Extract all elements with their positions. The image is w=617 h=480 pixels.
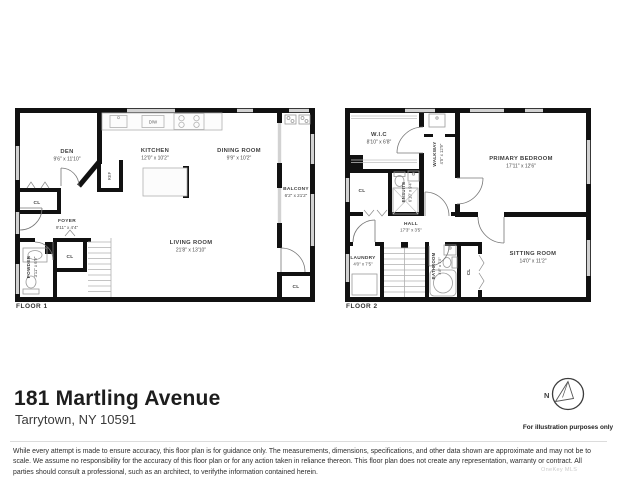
footer-divider: [10, 441, 607, 442]
compass-caption: For illustration purposes only: [500, 424, 617, 431]
room-dims-den: 9'6" x 11'10": [53, 157, 80, 163]
washer-icon: [352, 274, 377, 295]
floorplan-page: DEN 9'6" x 11'10" KITCHEN 12'0" x 10'2" …: [0, 0, 617, 480]
room-label-dining: DINING ROOM: [217, 148, 261, 154]
vanity-icon: [429, 114, 445, 127]
room-label-powder: POWDER: [26, 255, 31, 278]
room-label-balcony: BALCONY: [283, 186, 309, 192]
den-door-icon: [61, 168, 79, 186]
closet-label: CL: [293, 284, 300, 290]
room-dims-primary: 17'11" x 12'6": [506, 164, 536, 170]
disclaimer-text: While every attempt is made to ensure ac…: [13, 447, 601, 478]
room-dims-powder: 3'11" x 6'9": [33, 256, 38, 277]
room-label-foyer: FOYER: [58, 218, 76, 224]
room-dims-ensuite: 6'10" x 9'4": [408, 181, 413, 202]
room-label-living: LIVING ROOM: [170, 240, 213, 246]
walkway-door-icon: [425, 192, 449, 216]
bathtub-basin-icon: [434, 273, 453, 293]
room-label-primary: PRIMARY BEDROOM: [489, 156, 553, 162]
room-label-wic: W.I.C: [371, 132, 387, 138]
floor1-tag: FLOOR 1: [16, 303, 48, 310]
room-label-den: DEN: [60, 149, 73, 155]
address-line2: Tarrytown, NY 10591: [15, 412, 136, 427]
room-dims-bathroom: 4'8" x 7'5": [437, 257, 442, 275]
ref-label: REF: [107, 171, 112, 180]
room-dims-laundry: 4'0" x 7'5": [353, 262, 373, 267]
address-line1: 181 Martling Avenue: [14, 387, 220, 411]
floor1-walls: [15, 108, 315, 302]
room-label-kitchen: KITCHEN: [141, 148, 169, 154]
floor2-floorplan: W.I.C 8'10" x 6'8" WALKWAY 4'5" x 12'9" …: [345, 108, 591, 302]
room-label-sitting: SITTING ROOM: [510, 251, 557, 257]
room-label-hall: HALL: [404, 221, 418, 227]
room-dims-sitting: 14'0" x 11'2": [519, 259, 546, 265]
stairs-icon: [88, 238, 111, 297]
closet-label: CL: [34, 200, 41, 206]
den-diagonal-wall: [79, 162, 99, 186]
room-dims-hall: 17'3" x 3'5": [400, 228, 422, 233]
room-dims-walkway: 4'5" x 12'9": [439, 143, 444, 164]
floor1-floorplan: DEN 9'6" x 11'10" KITCHEN 12'0" x 10'2" …: [15, 108, 315, 302]
closet-label: CL: [466, 269, 471, 276]
kitchen-island-icon: [143, 168, 187, 196]
balcony-door-icon: [281, 248, 305, 272]
stairs-icon: [384, 248, 425, 297]
room-label-bathroom: BATHROOM: [431, 252, 436, 279]
stove-icon: [174, 114, 204, 130]
floor2-tag: FLOOR 2: [346, 303, 378, 310]
bedroom-door-icon: [457, 178, 483, 204]
closet-label: CL: [67, 254, 74, 260]
compass-north-letter: N: [544, 391, 549, 400]
room-label-walkway: WALKWAY: [432, 141, 437, 166]
balcony-furniture-icon: [285, 115, 310, 124]
mls-watermark: OneKey MLS: [541, 467, 577, 473]
room-dims-living: 21'8" x 13'10": [176, 248, 206, 254]
room-dims-kitchen: 12'0" x 10'2": [141, 156, 169, 162]
room-dims-balcony: 6'2" x 21'2": [285, 193, 308, 198]
toilet-tank-icon: [23, 289, 39, 294]
room-label-ensuite: ENSUITE: [401, 182, 406, 203]
wic-door-icon: [397, 127, 423, 153]
toilet-tank-icon: [452, 257, 457, 268]
room-dims-foyer: 9'11" x 4'4": [56, 225, 79, 230]
floor1-labels: DEN 9'6" x 11'10" KITCHEN 12'0" x 10'2" …: [26, 120, 309, 291]
room-label-laundry: LAUNDRY: [350, 255, 376, 261]
room-dims-wic: 8'10" x 6'8": [367, 140, 392, 146]
dishwasher-label: D/W: [149, 120, 157, 125]
north-compass-icon: N: [535, 372, 599, 420]
room-dims-dining: 9'9" x 10'2": [227, 156, 252, 162]
laundry-door-icon: [353, 220, 375, 242]
sitting-door-icon: [478, 217, 504, 243]
closet-label: CL: [359, 188, 366, 194]
